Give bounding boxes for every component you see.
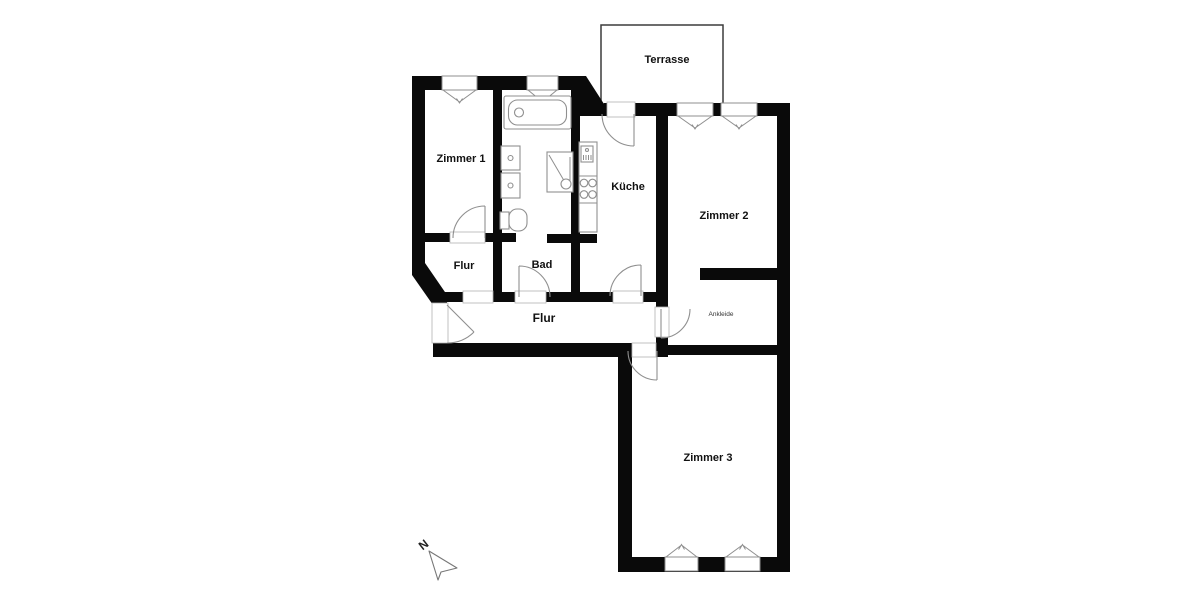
bathtub-icon xyxy=(504,96,571,129)
terrace-door-opening xyxy=(607,102,635,117)
washing-machine-icon xyxy=(501,146,520,198)
windows xyxy=(442,76,760,571)
wall-right-exterior xyxy=(777,103,790,572)
shower-icon xyxy=(547,152,573,192)
wall-zimmer3-left xyxy=(618,343,632,572)
zimmer1-door-opening xyxy=(450,232,485,243)
terrace-label: Terrasse xyxy=(644,54,689,66)
wall-ankleide-zimmer3 xyxy=(656,345,777,355)
door-swing-icon-terrace xyxy=(602,114,634,146)
flur-label: Flur xyxy=(533,311,556,325)
north-arrow-icon: N xyxy=(416,537,457,580)
flur-passage-opening xyxy=(463,291,493,303)
ankleide-door-opening xyxy=(655,307,669,337)
kueche-label: Küche xyxy=(611,181,645,193)
terrace-area: Terrasse xyxy=(601,25,723,104)
window-icon-zimmer1 xyxy=(442,76,477,103)
window-icon-zimmer2-left xyxy=(677,103,713,129)
window-icon-zimmer3-left xyxy=(665,545,698,572)
floor-plan-page: Terrasse xyxy=(0,0,1200,600)
kitchen-fixtures xyxy=(579,142,597,232)
bad-door-opening xyxy=(515,291,546,303)
wall-bottom-exterior xyxy=(618,557,790,572)
toilet-icon xyxy=(500,209,527,231)
kitchen-appliance-icon xyxy=(581,146,593,162)
window-icon-zimmer3-right xyxy=(725,545,760,572)
flur-klein-label: Flur xyxy=(454,260,475,272)
ankleide-label: Ankleide xyxy=(709,311,734,318)
zimmer1-label: Zimmer 1 xyxy=(437,153,486,165)
wall-zimmer2-ankleide xyxy=(700,268,777,280)
north-arrow-shape xyxy=(429,551,457,580)
kueche-door-opening xyxy=(613,291,643,303)
wall-kueche-east xyxy=(656,116,668,307)
window-icon-zimmer2-right xyxy=(721,103,757,129)
door-swing-icon-entrance xyxy=(447,305,474,343)
bad-label: Bad xyxy=(532,259,553,271)
zimmer2-label: Zimmer 2 xyxy=(700,210,749,222)
zimmer3-door-opening xyxy=(632,343,656,357)
entrance-door-opening xyxy=(432,303,448,343)
wall-corridor-bottom xyxy=(433,343,632,357)
walls xyxy=(412,76,790,572)
floor-plan: Terrasse xyxy=(0,0,1200,600)
bathroom-fixtures xyxy=(500,96,573,231)
zimmer3-label: Zimmer 3 xyxy=(684,452,733,464)
